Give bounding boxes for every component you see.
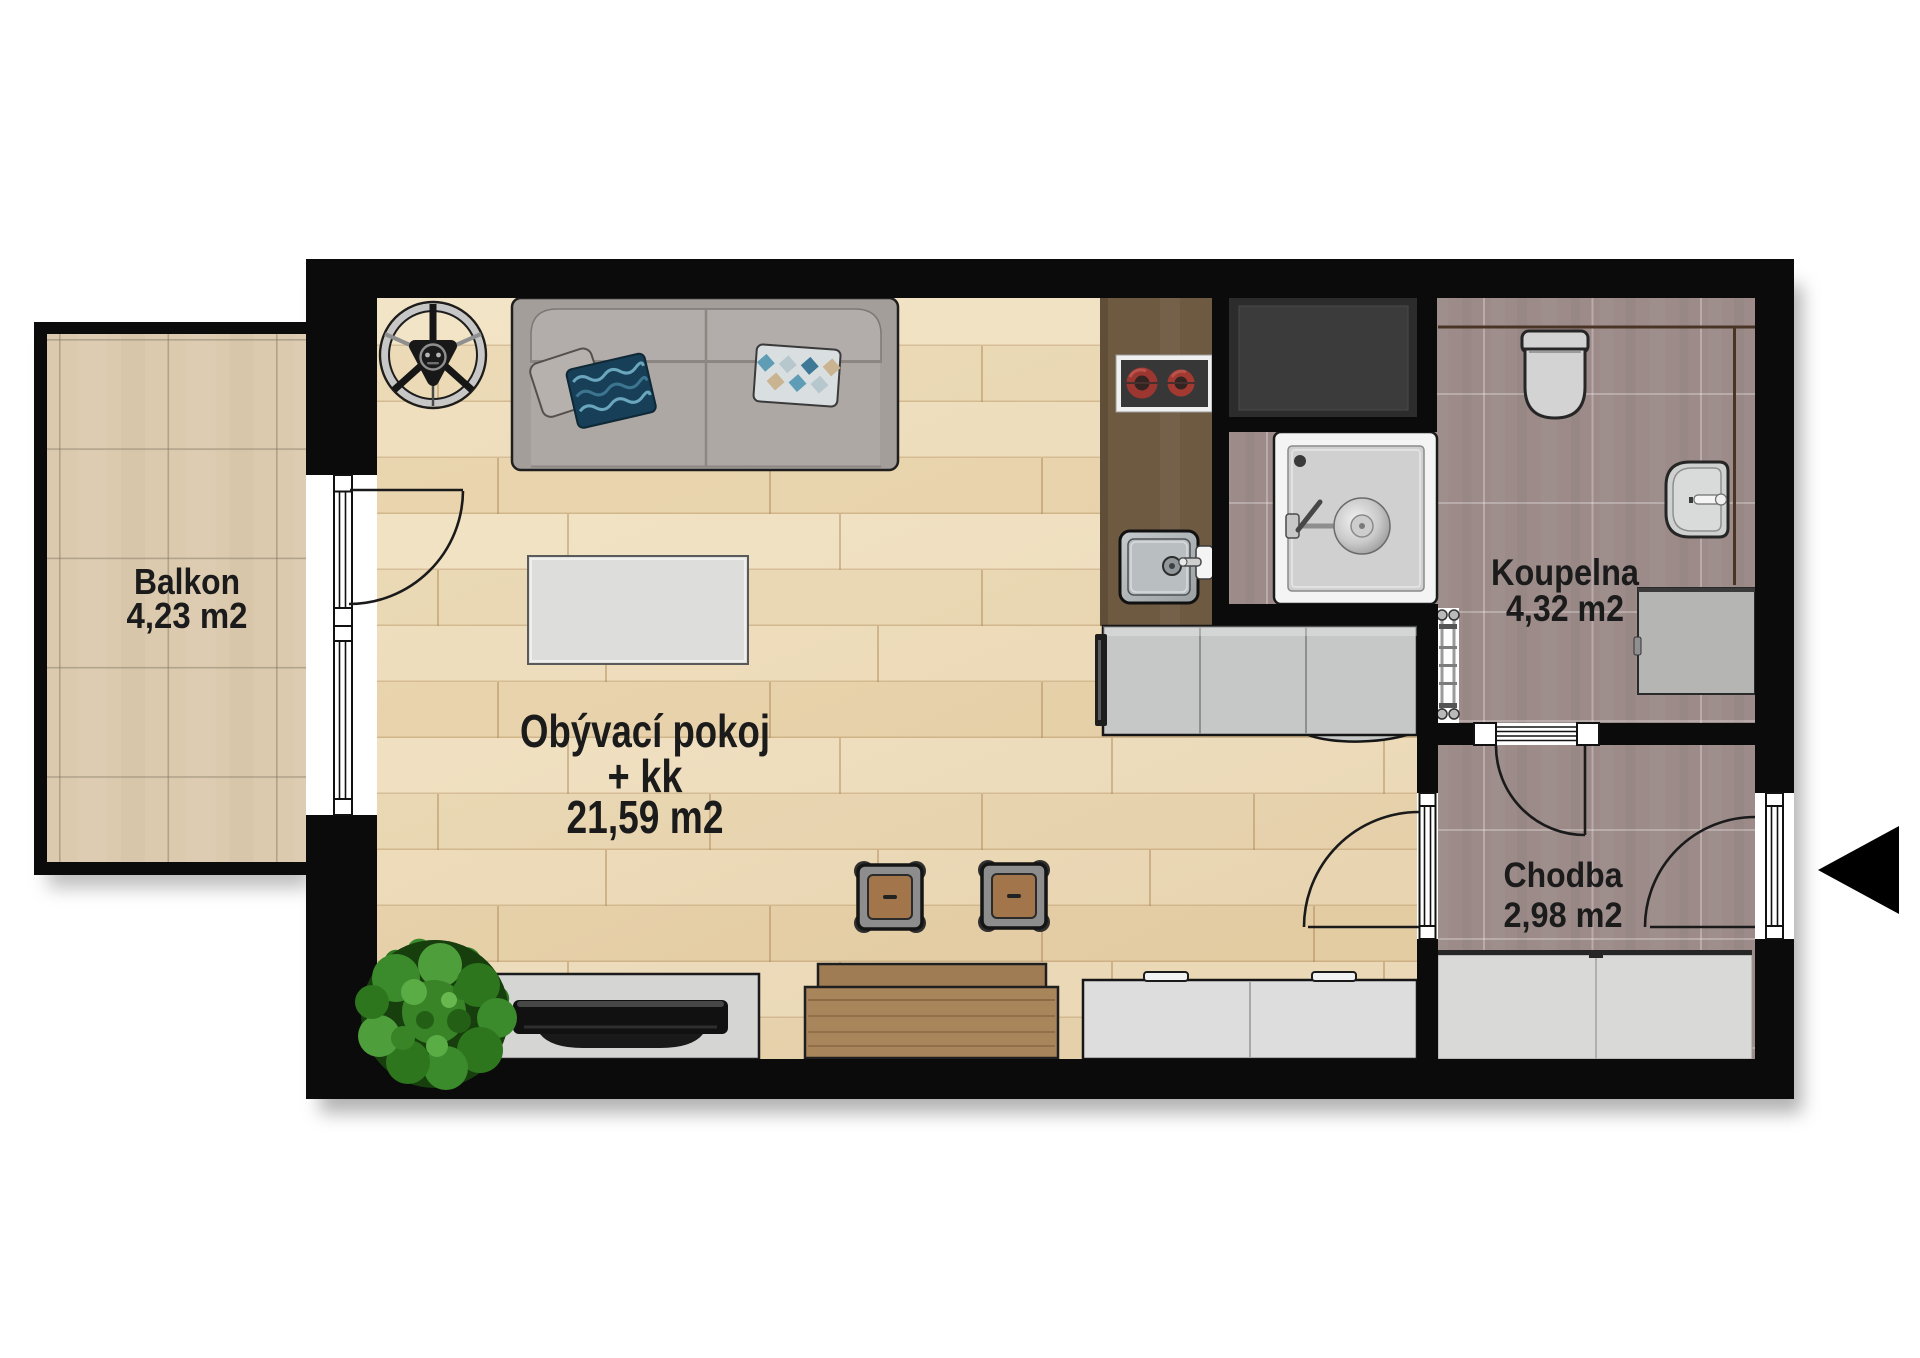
svg-text:Chodba: Chodba bbox=[1504, 856, 1623, 895]
svg-text:21,59 m2: 21,59 m2 bbox=[567, 791, 724, 843]
svg-text:Koupelna: Koupelna bbox=[1491, 552, 1639, 593]
svg-text:2,98 m2: 2,98 m2 bbox=[1504, 896, 1623, 935]
svg-text:4,23 m2: 4,23 m2 bbox=[127, 595, 248, 636]
svg-text:4,32 m2: 4,32 m2 bbox=[1506, 588, 1624, 629]
